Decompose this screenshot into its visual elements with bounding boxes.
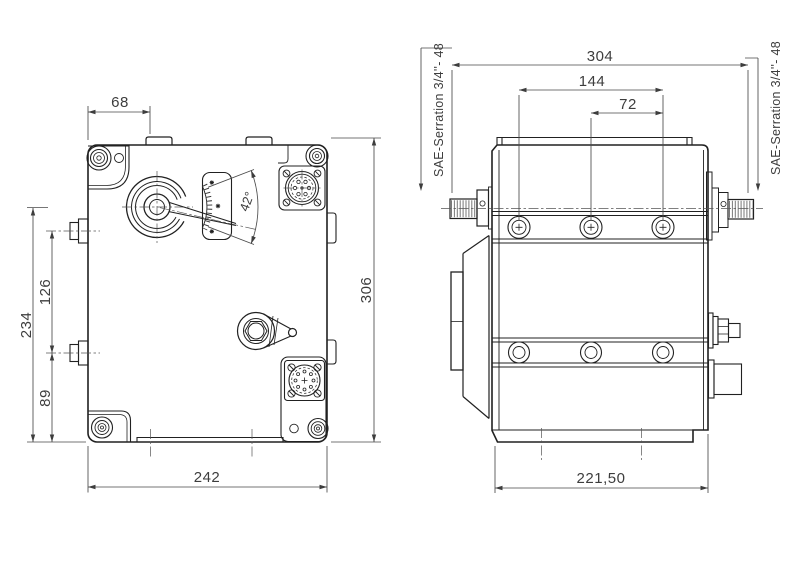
dim-side-top-width: 304 <box>587 48 614 65</box>
front-angle-dimension: 42° <box>208 170 258 245</box>
dim-screw-pitch: 72 <box>619 96 637 113</box>
front-angle-scale <box>202 173 231 240</box>
side-shaft-right <box>707 172 754 240</box>
drawing-canvas: 42° <box>0 0 800 566</box>
front-view: 42° <box>70 137 336 458</box>
scale-star-marks <box>210 180 221 233</box>
dim-lever-angle: 42° <box>236 190 257 214</box>
side-view <box>441 138 763 461</box>
front-left-bosses <box>70 219 88 365</box>
side-screws-bottom <box>509 342 674 363</box>
dim-right-height: 306 <box>358 277 375 304</box>
dim-screw-span: 144 <box>579 73 606 90</box>
side-bell-housing <box>451 236 489 419</box>
front-bracket-top-left <box>87 146 129 189</box>
front-connector-top <box>279 166 325 210</box>
technical-drawing: 42° <box>0 0 800 566</box>
front-lever-nut <box>238 313 297 350</box>
front-right-tabs <box>327 213 336 364</box>
dim-left-total: 234 <box>18 312 35 339</box>
dim-bottom-depth: 221,50 <box>577 470 626 487</box>
front-bottom-centerlines <box>151 429 253 458</box>
dim-boss-to-bottom: 89 <box>37 389 54 407</box>
spline-label-left: SAE-Serration 3/4''- 48 <box>432 43 446 177</box>
side-fitting-mid <box>709 313 741 348</box>
dim-boss-spacing: 126 <box>37 279 54 306</box>
dim-top-width: 68 <box>111 94 129 111</box>
spline-label-right: SAE-Serration 3/4''- 48 <box>769 41 783 175</box>
side-connector-bottom <box>709 360 742 398</box>
side-body <box>492 138 708 443</box>
side-dimensions: 304 144 72 221,50 SAE-Serration 3/4''- 4… <box>419 41 783 493</box>
side-bottom-centerlines <box>542 428 642 460</box>
front-bracket-bottom-left <box>88 411 131 442</box>
front-connector-bottom <box>281 357 328 442</box>
front-screw-top-right <box>278 145 328 167</box>
side-shaft-left <box>450 187 492 229</box>
dim-bottom-width: 242 <box>194 469 221 486</box>
